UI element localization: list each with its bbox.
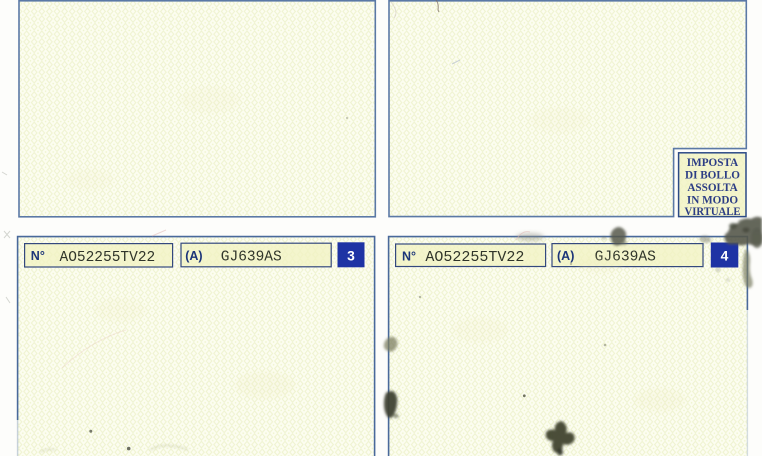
svg-text:AO52255TV22: AO52255TV22 xyxy=(425,249,524,266)
svg-text:(A): (A) xyxy=(185,249,202,263)
svg-text:IN MODO: IN MODO xyxy=(687,195,739,207)
svg-text:VIRTUALE: VIRTUALE xyxy=(685,206,741,218)
svg-text:3: 3 xyxy=(347,249,355,264)
svg-text:IMPOSTA: IMPOSTA xyxy=(687,157,738,169)
svg-text:N°: N° xyxy=(402,249,416,263)
svg-text:N°: N° xyxy=(31,249,45,263)
svg-text:GJ639AS: GJ639AS xyxy=(221,249,282,265)
svg-text:AO52255TV22: AO52255TV22 xyxy=(60,250,156,266)
svg-text:4: 4 xyxy=(721,249,729,264)
svg-text:(A): (A) xyxy=(557,249,574,263)
svg-text:ASSOLTA: ASSOLTA xyxy=(687,182,737,194)
svg-text:DI BOLLO: DI BOLLO xyxy=(685,170,740,182)
